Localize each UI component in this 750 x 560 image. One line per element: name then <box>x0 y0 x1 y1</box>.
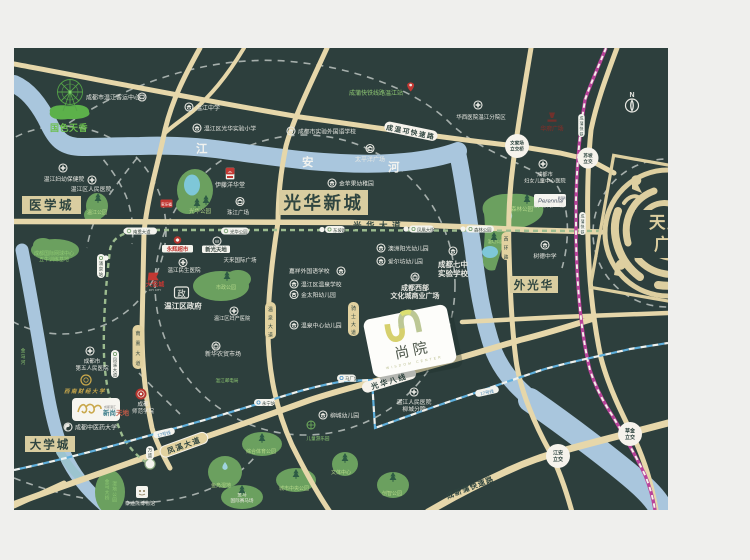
svg-text:文体中心: 文体中心 <box>331 469 351 476</box>
svg-text:河: 河 <box>388 160 400 174</box>
svg-text:温江邮电局: 温江邮电局 <box>216 377 239 384</box>
svg-text:温江区光华实验小学: 温江区光华实验小学 <box>204 125 256 133</box>
svg-text:儿童游乐园: 儿童游乐园 <box>307 435 330 442</box>
svg-text:森林公园: 森林公园 <box>511 205 534 213</box>
svg-text:地: 地 <box>112 486 117 492</box>
svg-text:河: 河 <box>21 359 26 365</box>
svg-text:伊藤洋华堂: 伊藤洋华堂 <box>215 181 245 189</box>
svg-text:成: 成 <box>581 214 585 219</box>
svg-text:柳城分院: 柳城分院 <box>402 405 425 413</box>
svg-text:创智公园: 创智公园 <box>382 490 402 497</box>
svg-text:成都国际网球中心: 成都国际网球中心 <box>34 250 74 257</box>
svg-text:新光天地: 新光天地 <box>205 245 227 253</box>
svg-text:蒲: 蒲 <box>580 121 584 126</box>
svg-text:铁: 铁 <box>580 131 584 136</box>
svg-text:成: 成 <box>580 116 584 121</box>
svg-text:树德中学: 树德中学 <box>533 252 556 260</box>
svg-text:道: 道 <box>268 332 273 339</box>
svg-text:成都市: 成都市 <box>537 170 553 178</box>
svg-text:安: 安 <box>302 155 314 169</box>
svg-text:爱尔坊幼儿园: 爱尔坊幼儿园 <box>388 258 423 266</box>
svg-text:澳洲阳光幼儿园: 澳洲阳光幼儿园 <box>388 245 429 253</box>
svg-text:成都市温江客运中心: 成都市温江客运中心 <box>86 94 140 102</box>
svg-text:成都港汇: 成都港汇 <box>104 404 116 409</box>
svg-text:嘉祥外国语学校: 嘉祥外国语学校 <box>289 267 330 275</box>
svg-text:实验学校: 实验学校 <box>438 268 468 278</box>
svg-text:道: 道 <box>351 329 356 336</box>
svg-text:道: 道 <box>113 372 118 379</box>
svg-text:快: 快 <box>581 224 585 229</box>
svg-text:公: 公 <box>112 492 117 497</box>
svg-text:温江人民医院: 温江人民医院 <box>397 398 432 406</box>
svg-text:江: 江 <box>196 142 208 156</box>
svg-text:盛: 盛 <box>148 452 153 458</box>
svg-text:鹏瑞利广场: 鹏瑞利广场 <box>534 201 565 209</box>
svg-text:光华公园: 光华公园 <box>230 229 248 236</box>
svg-text:温江区妇产医院: 温江区妇产医院 <box>214 314 251 322</box>
svg-text:温江民生医院: 温江民生医院 <box>167 266 201 274</box>
svg-text:永辉超市: 永辉超市 <box>166 245 189 253</box>
svg-text:立交桥: 立交桥 <box>510 146 524 153</box>
svg-text:南熏大道: 南熏大道 <box>133 229 151 236</box>
svg-text:凤凰大街: 凤凰大街 <box>417 227 435 234</box>
svg-text:温江区人民医院: 温江区人民医院 <box>71 185 112 193</box>
svg-text:国色天香: 国色天香 <box>50 122 89 133</box>
svg-text:西南财经大学: 西南财经大学 <box>64 388 106 395</box>
svg-text:立交: 立交 <box>553 456 563 463</box>
svg-text:草金: 草金 <box>625 428 636 435</box>
svg-text:立交: 立交 <box>625 434 635 441</box>
svg-text:温泉中心幼儿园: 温泉中心幼儿园 <box>301 322 342 330</box>
svg-text:立交: 立交 <box>583 158 593 165</box>
svg-text:华府广场: 华府广场 <box>540 125 563 133</box>
svg-text:涌: 涌 <box>99 260 103 266</box>
svg-text:森林公园: 森林公园 <box>474 227 492 234</box>
svg-text:柳城幼儿园: 柳城幼儿园 <box>330 412 359 420</box>
svg-text:新尚天地: 新尚天地 <box>103 408 130 417</box>
svg-text:综合体育公园: 综合体育公园 <box>246 448 276 455</box>
svg-text:温江区温泉学校: 温江区温泉学校 <box>301 281 342 289</box>
svg-text:苏坡: 苏坡 <box>583 152 593 159</box>
svg-text:大学城: 大学城 <box>30 438 71 452</box>
svg-text:温江公园: 温江公园 <box>87 209 107 216</box>
svg-text:温江妇幼保健院: 温江妇幼保健院 <box>44 175 85 183</box>
svg-text:马厂站: 马厂站 <box>345 376 359 383</box>
svg-text:光华公园: 光华公园 <box>189 207 212 215</box>
svg-text:市政公园: 市政公园 <box>216 284 236 291</box>
svg-text:熏: 熏 <box>136 340 141 347</box>
svg-text:珠江广场: 珠江广场 <box>227 209 250 217</box>
svg-text:成都七中: 成都七中 <box>438 259 468 269</box>
svg-text:国际赛马场: 国际赛马场 <box>231 497 254 504</box>
svg-text:天来国际广场: 天来国际广场 <box>223 256 257 264</box>
svg-text:泉: 泉 <box>268 315 273 322</box>
svg-text:金: 金 <box>21 347 26 353</box>
svg-text:金太阳幼儿园: 金太阳幼儿园 <box>301 291 336 299</box>
svg-text:鱼凫湿地: 鱼凫湿地 <box>211 482 231 489</box>
svg-text:路: 路 <box>504 254 509 261</box>
svg-text:大: 大 <box>136 350 141 357</box>
svg-text:成都市实验外国语学校: 成都市实验外国语学校 <box>298 128 356 136</box>
svg-text:成都市: 成都市 <box>84 357 101 365</box>
svg-text:外光华: 外光华 <box>513 278 555 292</box>
svg-text:金苹果幼稚园: 金苹果幼稚园 <box>339 180 374 188</box>
svg-text:快: 快 <box>580 126 584 131</box>
svg-text:江安: 江安 <box>553 450 563 457</box>
svg-text:大: 大 <box>351 321 356 328</box>
svg-text:马: 马 <box>21 353 26 360</box>
svg-text:文化城商业广场: 文化城商业广场 <box>391 291 440 300</box>
svg-text:医学城: 医学城 <box>29 198 74 213</box>
svg-text:温江区政府: 温江区政府 <box>164 301 202 311</box>
svg-text:光华大道: 光华大道 <box>352 221 405 231</box>
svg-text:泰迪熊博物馆: 泰迪熊博物馆 <box>125 500 155 507</box>
svg-text:东坡路: 东坡路 <box>333 227 347 234</box>
svg-text:新华农贸市场: 新华农贸市场 <box>205 350 241 358</box>
svg-text:成都: 成都 <box>137 400 149 408</box>
svg-text:城市中央公园: 城市中央公园 <box>279 485 309 492</box>
svg-text:南: 南 <box>136 330 141 337</box>
svg-text:华西医院温江分院区: 华西医院温江分院区 <box>456 113 506 121</box>
svg-text:政: 政 <box>177 288 186 298</box>
svg-text:永宁站: 永宁站 <box>262 400 276 407</box>
svg-text:站: 站 <box>99 271 104 278</box>
svg-text:妇女儿童中心医院: 妇女儿童中心医院 <box>524 177 566 185</box>
svg-text:骑: 骑 <box>351 305 356 312</box>
svg-text:文家场: 文家场 <box>510 140 524 147</box>
svg-text:温: 温 <box>268 306 273 313</box>
svg-text:成都西部: 成都西部 <box>401 283 429 292</box>
svg-text:蒲: 蒲 <box>581 219 585 224</box>
svg-text:士: 士 <box>351 313 356 320</box>
svg-text:师范学院: 师范学院 <box>132 407 155 415</box>
svg-text:N: N <box>629 92 634 99</box>
svg-text:铁: 铁 <box>581 229 585 234</box>
svg-text:成都中医药大学: 成都中医药大学 <box>75 424 117 432</box>
svg-text:太平洋广场: 太平洋广场 <box>355 156 385 164</box>
svg-text:道: 道 <box>136 360 141 367</box>
svg-text:家乐福: 家乐福 <box>161 202 172 207</box>
svg-text:大: 大 <box>268 323 273 330</box>
svg-text:JOY CITY: JOY CITY <box>149 288 162 292</box>
svg-text:温江中学: 温江中学 <box>196 104 220 112</box>
svg-text:第五人民医院: 第五人民医院 <box>75 364 109 372</box>
svg-text:成蒲快铁线路温江站: 成蒲快铁线路温江站 <box>349 89 403 97</box>
svg-text:光华新城: 光华新城 <box>283 193 364 213</box>
svg-text:泉: 泉 <box>99 266 104 272</box>
svg-text:桥: 桥 <box>105 495 110 502</box>
svg-text:五牛训练基地: 五牛训练基地 <box>39 256 69 263</box>
svg-text:金: 金 <box>105 478 110 484</box>
svg-text:鹏瑞利: 鹏瑞利 <box>558 196 566 200</box>
